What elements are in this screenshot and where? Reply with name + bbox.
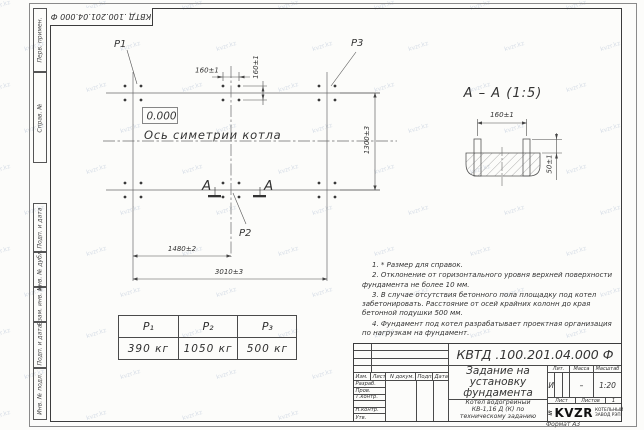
tb-scale-label: Масштаб [594,366,621,373]
tb-col-date: Дата [433,373,449,381]
margin-cell-podp-data-1: Подп. и дата [33,203,47,252]
tb-grid-line [416,381,417,421]
tb-grid-line [371,344,372,373]
loads-table-value-p1: 390 кг [119,338,179,359]
margin-stamp-column: Перв. примен. Справ. № Подп. и дата Инв.… [33,8,48,420]
dim-section-spacing: 160±1 [490,111,514,119]
corner-document-stamp: КВТД .100.201.04.000 Ф [50,8,153,26]
drawing-sheet: kvzr.kzkvzr.kzkvzr.kzkvzr.kzkvzr.kzkvzr.… [0,0,644,430]
section-letter-left: А [201,178,211,194]
loads-table-value-p3: 500 кг [238,338,296,359]
load-label-p1: P1 [114,39,126,50]
elevation-mark: 0.000 [147,111,177,123]
section-cut-marks [208,187,266,197]
margin-cell-perv-primen: Перв. примен. [33,8,47,72]
loads-table-header-p2: P₂ [179,316,239,338]
kvzr-logo-icon [548,407,552,419]
tb-col-doc: N докум. [386,373,416,381]
tb-logo-cell: KVZR КОТЕЛЬНЫЙ ЗАВОД РЭП [548,404,621,421]
concrete-pad [466,153,540,176]
tb-doc-number: КВТД .100.201.04.000 Ф [449,344,621,366]
notes-block: 1. * Размер для справок. 2. Отклонение о… [362,261,616,339]
kvzr-logo-caption: КОТЕЛЬНЫЙ ЗАВОД РЭП [595,408,621,418]
load-label-p3: P3 [351,38,363,49]
tb-row-razrab: Разраб. [354,381,386,388]
format-label: Формат А3 [546,421,580,428]
dim-section-protrusion: 50±1 [546,154,554,173]
plan-axis-lines [103,66,397,281]
margin-cell-inv-podl: Инв. № подл. [33,368,47,420]
margin-cell-inv-dubl: Инв. № дубл. [33,252,47,287]
tb-title: Задание на установку фундамента [449,366,548,400]
note-1: 1. * Размер для справок. [362,261,616,270]
kvzr-logo-text: KVZR [554,406,593,420]
section-detail [466,119,562,186]
loads-table-header-p3: P₃ [238,316,296,338]
tb-lit-label: Лит. [548,366,570,373]
dim-bolt-y: 160±1 [252,55,260,79]
tb-lit-value: И [548,373,555,398]
tb-lit-cell [555,373,562,398]
tb-lit-cell [563,373,570,398]
loads-table-header-p1: P₁ [119,316,179,338]
note-2: 2. Отклонение от горизонтального уровня … [362,271,616,290]
tb-reserve-row [354,366,449,373]
margin-cell-vzam-inv: Взам. инв. № [33,287,47,322]
section-title: А – А (1:5) [463,86,543,101]
tb-mass-value: – [570,373,594,398]
symmetry-axis-label: Ось симетрии котла [144,128,281,142]
dim-total: 3010±3 [215,268,243,276]
tb-subtitle: Котел водогрейный КВ-1,16 Д (К) по техни… [449,400,548,421]
section-letter-right: А [263,178,273,194]
loads-table: P₁ P₂ P₃ 390 кг 1050 кг 500 кг [118,315,297,360]
tb-col-list: Лист [371,373,386,381]
dim-rows: 1300±3 [363,126,371,154]
tb-mass-label: Масса [570,366,594,373]
loads-table-value-p2: 1050 кг [179,338,239,359]
margin-cell-sprav: Справ. № [33,72,47,163]
tb-row-utv: Утв. [354,414,386,421]
tb-col-sign: Подп. [416,373,433,381]
tb-reserve-row [354,351,449,358]
dim-bolt-x: 160±1 [195,67,219,75]
tb-reserve-row [354,344,449,351]
note-4: 4. Фундамент под котел разрабатывает про… [362,320,616,339]
dim-left-mid: 1480±2 [168,245,197,253]
tb-scale-value: 1:20 [594,373,621,398]
tb-reserve-row [354,359,449,366]
tb-grid-line [433,381,434,421]
title-block: Изм. Лист N докум. Подп. Дата Разраб. Пр… [353,343,621,421]
load-label-p2: P2 [239,228,251,239]
note-3: 3. В случае отсутствия бетонного пола пл… [362,291,616,319]
tb-col-izm: Изм. [354,373,371,381]
margin-cell-podp-data-2: Подп. и дата [33,322,47,368]
